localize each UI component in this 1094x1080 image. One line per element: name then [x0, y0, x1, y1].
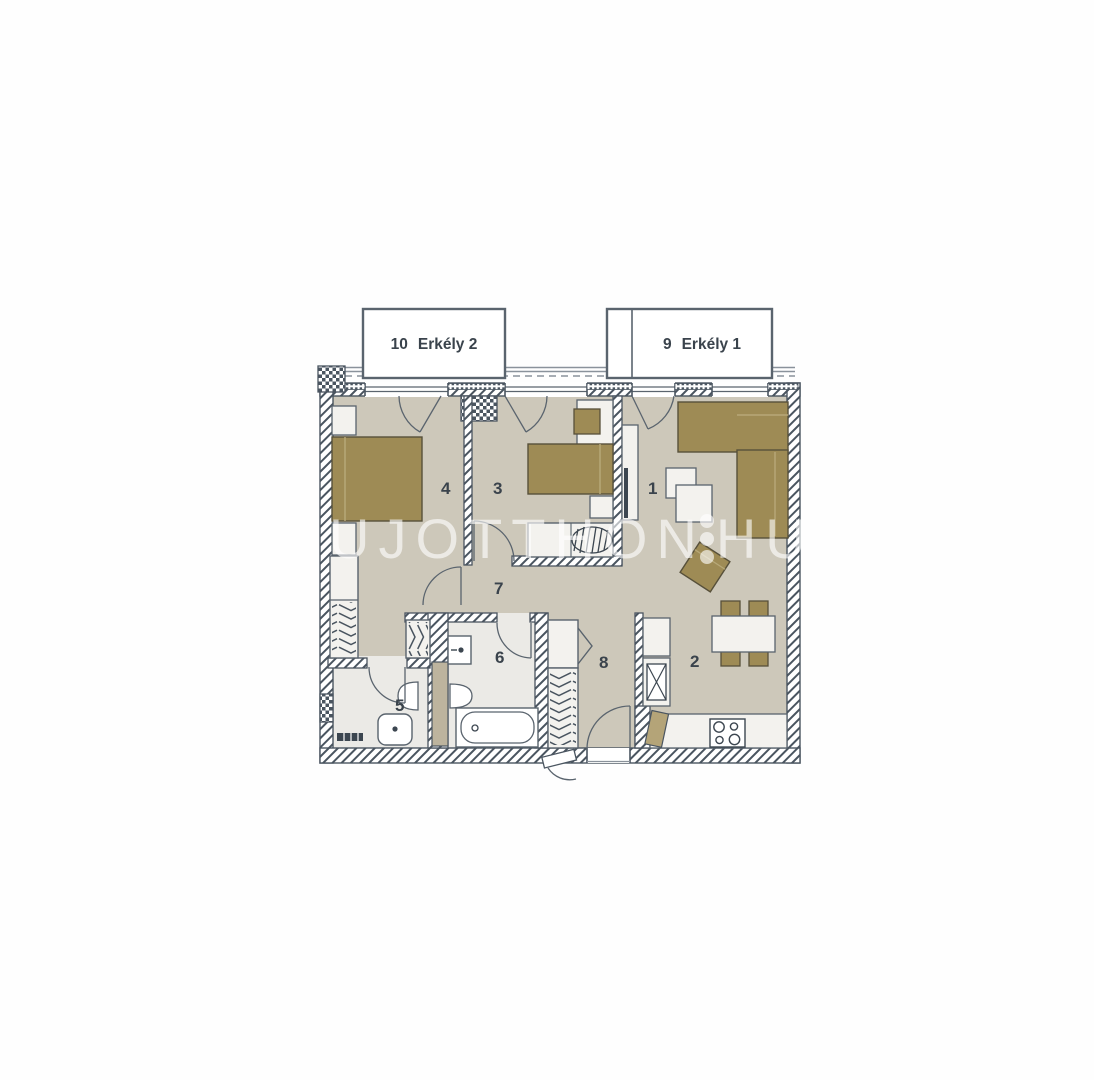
- room-label-6: 6: [495, 648, 505, 668]
- room-label-7: 7: [494, 579, 504, 599]
- bathtub: [456, 708, 538, 747]
- stove: [710, 719, 745, 747]
- window-room3: [505, 382, 587, 397]
- washing-machine: [448, 636, 471, 664]
- room4-nightstand-bottom: [332, 523, 356, 555]
- sofa-horizontal: [678, 402, 788, 452]
- fridge: [643, 658, 670, 706]
- room3-chair: [574, 409, 600, 434]
- floorplan-drawing: [0, 0, 1094, 1080]
- balcony-2-label: 10 Erkély 2: [391, 336, 478, 354]
- room-label-1: 1: [648, 479, 658, 499]
- balcony-1-label: 9 Erkély 1: [663, 336, 741, 354]
- floorplan-canvas: 10 Erkély 2 9 Erkély 1 1 2 3 4 5 6 7 8 U…: [0, 0, 1094, 1080]
- coffee-table-2: [676, 485, 712, 522]
- balcony-1-number: 9: [663, 336, 672, 354]
- balcony-2-name: Erkély 2: [418, 336, 477, 354]
- small-wardrobe: [406, 620, 430, 658]
- room-label-4: 4: [441, 479, 451, 499]
- window-room1-door: [632, 382, 675, 397]
- window-room4: [365, 382, 448, 397]
- sofa-vertical: [737, 450, 788, 538]
- shaft-duct: [432, 662, 448, 746]
- room-label-5: 5: [395, 696, 405, 716]
- entrance-opening: [587, 748, 630, 763]
- room4-nightstand-top: [332, 406, 356, 435]
- room-label-8: 8: [599, 653, 609, 673]
- room-label-2: 2: [690, 652, 700, 672]
- room-label-3: 3: [493, 479, 503, 499]
- tv: [624, 468, 628, 518]
- tall-cabinet: [643, 618, 670, 656]
- toilet: [378, 714, 412, 745]
- room3-wardrobe: [528, 523, 613, 557]
- room4-wardrobe: [330, 556, 358, 658]
- window-room1: [712, 382, 768, 397]
- dining-table: [712, 616, 775, 652]
- radiator: [337, 733, 363, 741]
- balcony-2-number: 10: [391, 336, 408, 354]
- balcony-1-name: Erkély 1: [682, 336, 741, 354]
- room3-nightstand: [590, 496, 613, 518]
- hall-wardrobe: [548, 668, 578, 748]
